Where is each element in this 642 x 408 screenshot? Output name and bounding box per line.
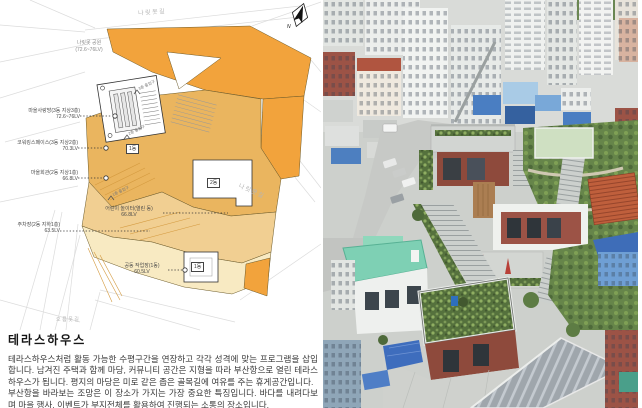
callout-level: 66.8LV [97, 212, 161, 218]
description-paragraph-2: 부산항을 바라보는 조망은 이 장소가 가지는 가장 중요한 특징입니다. 바다… [8, 388, 318, 408]
callout-playground: 어린이 놀이터(열린 동) 66.8LV [97, 206, 161, 219]
building-tag-2: 2동 [207, 178, 220, 188]
building-tag-1: 1동 [126, 144, 139, 154]
building-tag-3: 1동 [191, 262, 204, 272]
park-level: (72.6~76LV) [75, 47, 102, 53]
compass-icon [289, 1, 312, 29]
callout-name: 주차장(2동 지하1층) [18, 222, 60, 228]
callout-workshop: 공동 작업장(1동) 60.5LV [116, 263, 168, 276]
callout-name: 공동 작업장(1동) [124, 263, 159, 269]
callout-townhall: 마을회관(2동 지상1층) 66.8LV [3, 170, 78, 183]
callout-level: 60.5LV [116, 269, 168, 275]
callout-level: 63.5LV [6, 228, 60, 234]
portfolio-page: 나릿못길 나릿못길 오름못길 나릿못 공원 (72.6~76LV) 마을사랑방(… [0, 0, 642, 408]
page-title: 테라스하우스 [8, 331, 318, 348]
park-name: 나릿못 공원 [77, 40, 101, 46]
callout-level: 70.3LV [3, 146, 78, 152]
callout-level: 72.6~76LV [5, 114, 80, 120]
compass-north-label: N [287, 24, 291, 30]
callout-name: 마을회관(2동 지상1층) [31, 170, 78, 176]
aerial-photo [323, 0, 638, 408]
site-plan-drawing [0, 0, 321, 332]
callout-level: 66.8LV [3, 176, 78, 182]
callout-parking: 주차장(2동 지하1층) 63.5LV [6, 222, 60, 235]
description-paragraph-1: 테라스하우스처럼 활동 가능한 수평구간을 연장하고 각각 성격에 맞는 프로그… [8, 354, 318, 388]
description-block: 테라스하우스 테라스하우스처럼 활동 가능한 수평구간을 연장하고 각각 성격에… [8, 331, 318, 408]
callout-name: 코워킹스페이스(3동 지상2층) [17, 140, 78, 146]
callout-name: 어린이 놀이터(열린 동) [105, 206, 153, 212]
park-label: 나릿못 공원 (72.6~76LV) [56, 40, 122, 54]
callout-sarangbang: 마을사랑방(3동 지상3층) 72.6~76LV [5, 108, 80, 121]
callout-name: 마을사랑방(3동 지상3층) [28, 108, 80, 114]
callout-coworking: 코워킹스페이스(3동 지상2층) 70.3LV [3, 140, 78, 153]
street-label-bottom: 오름못길 [56, 316, 80, 323]
